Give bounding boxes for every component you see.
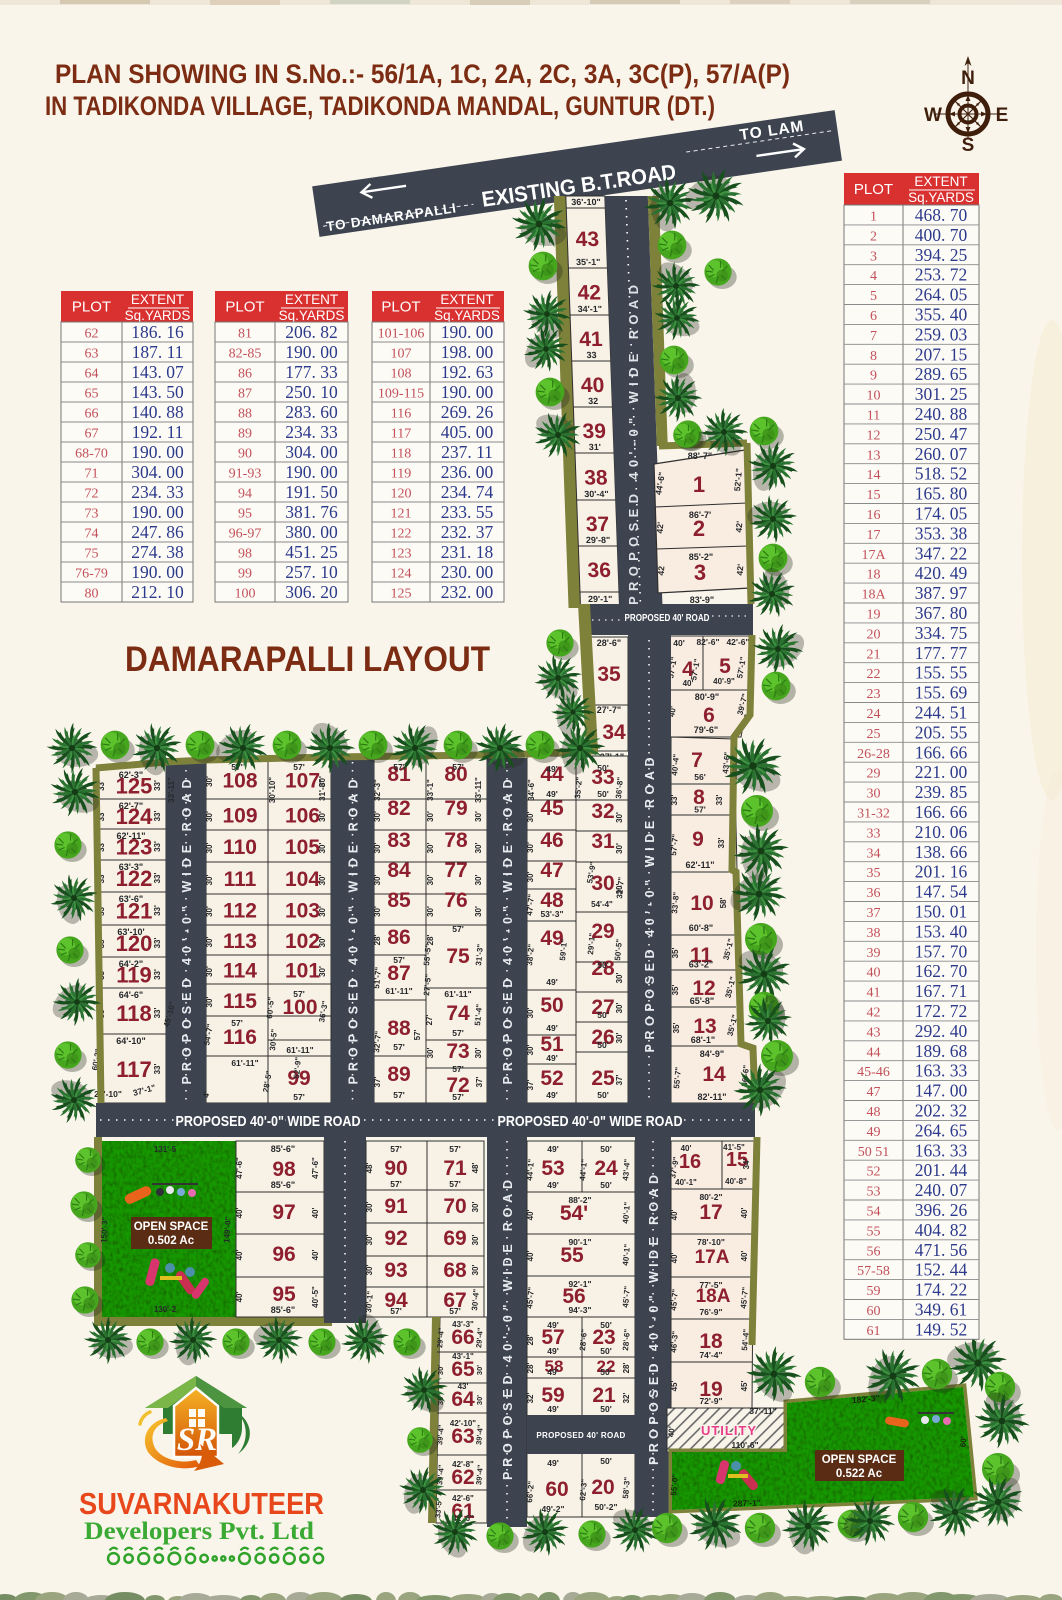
- svg-text:30': 30': [526, 1008, 535, 1019]
- svg-text:27'-5": 27'-5": [422, 973, 433, 996]
- svg-text:61'-11": 61'-11": [444, 989, 471, 999]
- svg-text:102: 102: [285, 930, 320, 953]
- svg-text:33': 33': [153, 1064, 162, 1075]
- svg-text:60'-8": 60'-8": [689, 923, 713, 933]
- svg-text:50'-5": 50'-5": [613, 938, 624, 961]
- svg-text:57': 57': [452, 924, 463, 934]
- svg-text:32: 32: [588, 396, 598, 406]
- svg-text:40': 40': [235, 1292, 244, 1303]
- svg-text:30': 30': [426, 811, 435, 822]
- svg-text:Sq.YARDS: Sq.YARDS: [908, 190, 974, 205]
- svg-text:30': 30': [318, 937, 327, 948]
- svg-text:37: 37: [585, 513, 609, 536]
- svg-text:103: 103: [285, 900, 320, 923]
- svg-text:57': 57': [413, 1030, 422, 1041]
- svg-text:96-97: 96-97: [229, 527, 262, 542]
- svg-text:49': 49': [547, 1320, 558, 1330]
- svg-text:30': 30': [373, 843, 382, 854]
- svg-text:90: 90: [238, 447, 252, 462]
- svg-text:36: 36: [587, 559, 611, 582]
- svg-text:30': 30': [318, 843, 327, 854]
- svg-text:50': 50': [600, 1144, 611, 1154]
- svg-text:1: 1: [870, 209, 877, 224]
- svg-text:87: 87: [238, 387, 252, 402]
- svg-text:79'-6": 79'-6": [694, 725, 718, 735]
- svg-text:57': 57': [452, 1064, 463, 1074]
- svg-text:152. 44: 152. 44: [915, 1260, 968, 1280]
- svg-text:25: 25: [591, 1067, 615, 1090]
- svg-text:30'-4": 30'-4": [470, 1288, 481, 1311]
- svg-text:36'-8": 36'-8": [614, 776, 625, 799]
- svg-text:190. 00: 190. 00: [131, 562, 184, 582]
- svg-text:35': 35': [671, 948, 680, 959]
- svg-text:104: 104: [285, 868, 320, 891]
- svg-text:24: 24: [867, 707, 881, 722]
- svg-text:40': 40': [311, 1208, 320, 1219]
- svg-text:111: 111: [224, 868, 257, 891]
- svg-text:DAMARAPALLI LAYOUT: DAMARAPALLI LAYOUT: [125, 640, 490, 679]
- svg-text:49': 49': [546, 789, 557, 799]
- svg-text:57': 57': [449, 1179, 460, 1189]
- svg-text:18: 18: [867, 568, 881, 583]
- svg-text:74: 74: [85, 527, 99, 542]
- svg-text:30'-5": 30'-5": [268, 1028, 279, 1051]
- svg-text:18A: 18A: [861, 588, 886, 603]
- svg-text:292. 40: 292. 40: [915, 1021, 968, 1041]
- svg-text:33: 33: [867, 826, 881, 841]
- svg-text:100: 100: [282, 996, 317, 1019]
- svg-text:65'-8": 65'-8": [690, 996, 714, 1006]
- svg-text:57': 57': [231, 1018, 242, 1028]
- svg-text:140. 88: 140. 88: [131, 402, 184, 422]
- svg-text:43: 43: [867, 1025, 881, 1040]
- svg-text:30': 30': [205, 811, 214, 822]
- svg-text:71: 71: [85, 467, 99, 482]
- svg-text:43'-4": 43'-4": [621, 1158, 632, 1181]
- svg-text:74'-4": 74'-4": [699, 1350, 722, 1360]
- svg-text:205. 55: 205. 55: [915, 722, 968, 742]
- svg-text:EXTENT: EXTENT: [914, 174, 967, 189]
- svg-text:55: 55: [867, 1224, 881, 1239]
- svg-text:57': 57': [393, 1042, 404, 1052]
- svg-text:301. 25: 301. 25: [915, 384, 968, 404]
- svg-text:EXTENT: EXTENT: [131, 292, 184, 307]
- svg-text:114: 114: [223, 960, 257, 983]
- svg-text:61'-11": 61'-11": [286, 1045, 313, 1055]
- svg-text:33'-11": 33'-11": [474, 777, 483, 803]
- svg-text:PROPOSED 40'-0" WIDE ROAD: PROPOSED 40'-0" WIDE ROAD: [647, 1175, 661, 1465]
- svg-text:60'-5": 60'-5": [265, 996, 276, 1019]
- svg-text:45': 45': [740, 1381, 749, 1392]
- svg-text:37': 37': [615, 1075, 624, 1086]
- svg-text:29'-4": 29'-4": [474, 1327, 485, 1348]
- svg-text:76'-9": 76'-9": [699, 1307, 722, 1317]
- svg-text:SR: SR: [177, 1422, 217, 1458]
- svg-text:53'-3": 53'-3": [540, 909, 563, 919]
- svg-text:105: 105: [285, 836, 320, 859]
- svg-text:355. 40: 355. 40: [915, 304, 968, 324]
- svg-text:122: 122: [116, 866, 153, 891]
- svg-text:30': 30': [474, 1048, 483, 1059]
- svg-text:49': 49': [546, 1053, 557, 1063]
- svg-text:19: 19: [867, 607, 881, 622]
- svg-text:48': 48': [471, 1163, 480, 1174]
- svg-text:157. 70: 157. 70: [915, 941, 968, 961]
- svg-text:57': 57': [390, 1306, 401, 1316]
- svg-text:57': 57': [293, 1092, 304, 1102]
- svg-text:44: 44: [867, 1045, 881, 1060]
- svg-text:17: 17: [867, 528, 881, 543]
- svg-text:30': 30': [474, 811, 483, 822]
- svg-text:45-46: 45-46: [857, 1065, 890, 1080]
- svg-text:31-32: 31-32: [857, 806, 890, 821]
- svg-text:347. 22: 347. 22: [915, 543, 968, 563]
- svg-text:394. 25: 394. 25: [915, 245, 968, 265]
- svg-text:47'-6": 47'-6": [235, 1157, 244, 1179]
- svg-text:17A: 17A: [861, 548, 886, 563]
- svg-text:143. 50: 143. 50: [131, 382, 184, 402]
- svg-text:52: 52: [867, 1165, 881, 1180]
- svg-text:42'-6": 42'-6": [452, 1494, 474, 1503]
- svg-text:237. 11: 237. 11: [441, 442, 493, 462]
- svg-text:40'-1": 40'-1": [621, 1201, 632, 1224]
- svg-text:55: 55: [560, 1244, 584, 1267]
- svg-text:29'-8": 29'-8": [586, 535, 611, 545]
- svg-text:20: 20: [867, 627, 881, 642]
- svg-text:198. 00: 198. 00: [441, 342, 494, 362]
- svg-text:1: 1: [693, 472, 705, 497]
- svg-text:30': 30': [526, 842, 535, 853]
- svg-text:54': 54': [560, 1202, 588, 1225]
- svg-text:6: 6: [703, 704, 715, 727]
- svg-text:50': 50': [600, 1367, 611, 1377]
- svg-text:77: 77: [444, 859, 467, 882]
- svg-text:88: 88: [387, 1017, 411, 1040]
- svg-text:88'-7": 88'-7": [688, 451, 712, 461]
- svg-text:190. 00: 190. 00: [441, 322, 494, 342]
- svg-text:87: 87: [387, 962, 410, 985]
- svg-text:75: 75: [446, 945, 470, 968]
- svg-text:82: 82: [387, 797, 410, 820]
- svg-text:29'-1": 29'-1": [586, 932, 597, 955]
- svg-text:124: 124: [116, 804, 153, 829]
- svg-text:SUVARNAKUTEER: SUVARNAKUTEER: [79, 1486, 324, 1521]
- svg-text:49': 49': [546, 977, 557, 987]
- svg-text:40': 40': [311, 1250, 320, 1261]
- svg-text:240. 88: 240. 88: [915, 404, 968, 424]
- svg-text:50': 50': [600, 1404, 611, 1414]
- svg-text:39: 39: [867, 946, 881, 961]
- svg-text:90: 90: [384, 1157, 407, 1180]
- svg-text:60: 60: [545, 1478, 568, 1501]
- svg-text:57': 57': [393, 762, 404, 772]
- svg-text:177. 77: 177. 77: [915, 643, 968, 663]
- svg-text:28': 28': [526, 1363, 535, 1374]
- svg-text:190. 00: 190. 00: [131, 502, 184, 522]
- svg-text:264. 65: 264. 65: [915, 1120, 968, 1140]
- svg-text:65: 65: [451, 1358, 475, 1381]
- svg-text:PLOT: PLOT: [72, 299, 111, 316]
- svg-text:48': 48': [365, 1163, 374, 1174]
- svg-text:207. 15: 207. 15: [915, 344, 968, 364]
- svg-text:206. 82: 206. 82: [285, 322, 338, 342]
- svg-text:349. 61: 349. 61: [915, 1299, 968, 1319]
- svg-text:40': 40': [740, 1251, 749, 1262]
- svg-text:10: 10: [867, 389, 881, 404]
- svg-text:28'-6": 28'-6": [597, 638, 621, 648]
- svg-text:70: 70: [443, 1195, 466, 1218]
- svg-text:45'-7": 45'-7": [739, 1286, 750, 1309]
- svg-text:57': 57': [694, 805, 705, 815]
- svg-text:33': 33': [153, 841, 162, 852]
- svg-text:30': 30': [318, 875, 327, 886]
- svg-text:13: 13: [867, 448, 881, 463]
- svg-text:117: 117: [116, 1057, 152, 1082]
- svg-text:33'-8": 33'-8": [670, 891, 681, 914]
- svg-text:234. 33: 234. 33: [131, 482, 184, 502]
- svg-text:42'-8": 42'-8": [452, 1460, 474, 1469]
- svg-text:PROPOSED 40'-0" WIDE ROAD: PROPOSED 40'-0" WIDE ROAD: [347, 780, 361, 1085]
- svg-text:97: 97: [272, 1201, 295, 1224]
- svg-text:49': 49': [546, 764, 557, 774]
- svg-text:54: 54: [867, 1204, 881, 1219]
- svg-text:40': 40': [683, 679, 694, 688]
- svg-text:334. 75: 334. 75: [915, 623, 968, 643]
- svg-text:28': 28': [426, 935, 435, 946]
- svg-text:42': 42': [734, 521, 745, 533]
- svg-text:30': 30': [205, 843, 214, 854]
- svg-text:93: 93: [384, 1259, 407, 1282]
- svg-text:30: 30: [867, 787, 881, 802]
- svg-text:64'-6": 64'-6": [119, 990, 143, 1000]
- svg-text:74: 74: [446, 1002, 470, 1025]
- svg-text:62: 62: [451, 1466, 474, 1489]
- svg-text:33': 33': [153, 780, 162, 791]
- svg-text:9: 9: [870, 369, 877, 384]
- svg-text:80'-9": 80'-9": [695, 692, 719, 702]
- svg-text:35: 35: [597, 663, 621, 686]
- svg-text:45'-7": 45'-7": [525, 1286, 536, 1309]
- svg-text:149'-0": 149'-0": [222, 1216, 232, 1243]
- svg-text:81: 81: [238, 327, 252, 342]
- svg-text:190. 00: 190. 00: [131, 442, 184, 462]
- svg-text:50': 50': [600, 1346, 611, 1356]
- svg-text:30': 30': [475, 1365, 484, 1375]
- svg-text:92: 92: [384, 1227, 407, 1250]
- svg-text:42: 42: [867, 1005, 881, 1020]
- svg-text:42: 42: [656, 565, 667, 576]
- svg-text:47'-7": 47'-7": [525, 893, 536, 916]
- svg-text:30': 30': [318, 811, 327, 822]
- svg-text:27'-7": 27'-7": [597, 705, 621, 715]
- svg-text:57': 57': [293, 989, 304, 999]
- svg-text:250. 47: 250. 47: [915, 424, 968, 444]
- svg-text:98: 98: [238, 547, 252, 562]
- svg-text:30': 30': [205, 906, 214, 917]
- svg-text:30'-10": 30'-10": [268, 777, 277, 803]
- svg-text:120: 120: [116, 931, 153, 956]
- svg-text:85: 85: [387, 889, 411, 912]
- svg-text:2: 2: [870, 229, 877, 244]
- svg-text:36'-10": 36'-10": [571, 197, 601, 207]
- svg-text:5: 5: [870, 289, 877, 304]
- svg-text:33': 33': [153, 938, 162, 949]
- svg-text:106: 106: [285, 805, 320, 828]
- svg-text:26-28: 26-28: [857, 747, 890, 762]
- svg-text:43'-3": 43'-3": [452, 1320, 474, 1329]
- svg-text:116: 116: [223, 1026, 257, 1049]
- svg-text:190. 00: 190. 00: [285, 462, 338, 482]
- svg-text:30': 30': [373, 906, 382, 917]
- svg-text:30': 30': [474, 875, 483, 886]
- svg-text:33': 33': [153, 905, 162, 916]
- svg-text:49': 49': [547, 1458, 558, 1468]
- svg-text:33'-11": 33'-11": [167, 777, 176, 803]
- svg-text:33': 33': [153, 1008, 162, 1019]
- svg-text:57': 57': [452, 762, 463, 772]
- svg-text:73: 73: [85, 507, 99, 522]
- svg-text:28': 28': [622, 1363, 631, 1374]
- svg-text:38: 38: [867, 926, 881, 941]
- svg-text:44'-1": 44'-1": [578, 1158, 589, 1181]
- svg-text:172. 72: 172. 72: [915, 1001, 968, 1021]
- svg-text:98: 98: [272, 1158, 296, 1181]
- svg-text:244. 51: 244. 51: [915, 702, 968, 722]
- svg-text:304. 00: 304. 00: [131, 462, 184, 482]
- svg-text:30': 30': [526, 1045, 535, 1056]
- svg-text:50': 50': [597, 763, 608, 773]
- svg-text:174. 05: 174. 05: [915, 503, 968, 523]
- svg-text:PROPOSED 40' ROAD: PROPOSED 40' ROAD: [536, 1431, 625, 1440]
- svg-text:125: 125: [391, 587, 412, 602]
- svg-text:232. 00: 232. 00: [441, 582, 494, 602]
- svg-text:55'-5": 55'-5": [422, 943, 433, 966]
- svg-text:108: 108: [222, 770, 257, 793]
- svg-text:68'-1": 68'-1": [691, 1035, 715, 1045]
- svg-text:34: 34: [867, 846, 881, 861]
- svg-text:86'-7': 86'-7': [689, 510, 711, 520]
- svg-text:155. 69: 155. 69: [915, 683, 968, 703]
- svg-text:60': 60': [959, 1436, 969, 1448]
- svg-text:40'-1": 40'-1": [675, 1178, 697, 1187]
- svg-text:57': 57': [449, 1144, 460, 1154]
- svg-text:31'-3": 31'-3": [474, 943, 485, 966]
- svg-text:191. 50: 191. 50: [285, 482, 338, 502]
- svg-text:30': 30': [426, 875, 435, 886]
- svg-text:236. 00: 236. 00: [441, 462, 494, 482]
- svg-text:30': 30': [471, 1202, 480, 1213]
- svg-text:4: 4: [870, 269, 877, 284]
- svg-text:82'-6": 82'-6": [696, 637, 719, 647]
- svg-text:37: 37: [867, 906, 881, 921]
- svg-text:PROPOSED 40'-0" WIDE ROAD: PROPOSED 40'-0" WIDE ROAD: [180, 780, 194, 1085]
- svg-text:212. 10: 212. 10: [131, 582, 184, 602]
- svg-text:27': 27': [425, 1015, 434, 1026]
- svg-text:289. 65: 289. 65: [915, 364, 968, 384]
- svg-text:35': 35': [672, 1023, 681, 1034]
- svg-text:113: 113: [223, 930, 257, 953]
- svg-text:PROPOSED 40' ROAD: PROPOSED 40' ROAD: [625, 613, 710, 624]
- svg-text:40': 40': [670, 1210, 679, 1221]
- svg-text:518. 52: 518. 52: [915, 464, 968, 484]
- svg-text:N: N: [961, 68, 975, 89]
- svg-text:51'-4": 51'-4": [473, 1003, 484, 1026]
- svg-text:23: 23: [867, 687, 881, 702]
- svg-text:40': 40': [670, 1253, 679, 1264]
- svg-text:30': 30': [365, 1202, 374, 1213]
- svg-text:50': 50': [600, 1180, 611, 1190]
- svg-text:41: 41: [867, 986, 881, 1001]
- svg-text:88'-2": 88'-2": [568, 1195, 591, 1205]
- svg-text:67: 67: [85, 427, 99, 442]
- svg-text:166. 66: 166. 66: [915, 802, 968, 822]
- svg-text:90'-1": 90'-1": [568, 1237, 591, 1247]
- svg-text:76-79: 76-79: [75, 567, 108, 582]
- svg-text:91: 91: [384, 1195, 408, 1218]
- svg-text:47: 47: [540, 859, 563, 882]
- svg-text:66: 66: [451, 1326, 474, 1349]
- svg-text:78'-10": 78'-10": [697, 1237, 725, 1247]
- svg-text:471. 56: 471. 56: [915, 1240, 968, 1260]
- svg-text:33': 33': [153, 811, 162, 822]
- svg-text:49': 49': [547, 1346, 558, 1356]
- svg-text:35'-1": 35'-1": [576, 257, 601, 267]
- svg-text:PLOT: PLOT: [854, 181, 893, 198]
- svg-text:50: 50: [540, 994, 563, 1017]
- svg-text:14: 14: [702, 1063, 726, 1086]
- svg-text:89: 89: [387, 1063, 410, 1086]
- svg-text:380. 00: 380. 00: [285, 522, 338, 542]
- svg-text:30': 30': [475, 1395, 484, 1405]
- svg-text:37': 37': [475, 1077, 484, 1088]
- svg-text:32': 32': [622, 1393, 631, 1404]
- svg-text:64'-10": 64'-10": [116, 1036, 145, 1046]
- svg-text:34: 34: [602, 721, 626, 744]
- svg-text:119: 119: [116, 963, 152, 988]
- svg-text:33': 33': [717, 838, 726, 849]
- svg-text:30': 30': [615, 812, 624, 823]
- svg-text:57': 57': [452, 1092, 463, 1102]
- svg-text:30': 30': [426, 906, 435, 917]
- svg-text:52'-1": 52'-1": [732, 468, 744, 492]
- svg-text:37': 37': [373, 1077, 382, 1088]
- svg-text:234. 74: 234. 74: [441, 482, 494, 502]
- svg-text:30': 30': [615, 1003, 624, 1014]
- svg-text:101-106: 101-106: [378, 327, 425, 342]
- svg-text:3: 3: [870, 249, 877, 264]
- svg-text:468. 70: 468. 70: [915, 205, 968, 225]
- svg-text:61: 61: [867, 1324, 881, 1339]
- svg-text:400. 70: 400. 70: [915, 225, 968, 245]
- svg-text:66'-2": 66'-2": [525, 1480, 536, 1503]
- svg-text:30': 30': [365, 1265, 374, 1276]
- svg-text:49': 49': [546, 1023, 557, 1033]
- svg-text:72: 72: [85, 487, 99, 502]
- svg-text:62'-11": 62'-11": [686, 860, 715, 870]
- svg-text:30': 30': [436, 1365, 445, 1375]
- svg-text:53: 53: [541, 1157, 564, 1180]
- svg-text:287'-1": 287'-1": [733, 1498, 761, 1509]
- svg-text:6: 6: [870, 309, 877, 324]
- svg-text:50': 50': [597, 960, 608, 970]
- svg-text:240. 07: 240. 07: [915, 1180, 968, 1200]
- svg-text:367. 80: 367. 80: [915, 603, 968, 623]
- svg-text:PROPOSED 40'-0" WIDE ROAD: PROPOSED 40'-0" WIDE ROAD: [626, 285, 641, 605]
- svg-text:232. 37: 232. 37: [441, 522, 494, 542]
- svg-text:40'-4": 40'-4": [670, 753, 681, 776]
- svg-text:92'-1": 92'-1": [568, 1279, 591, 1289]
- svg-text:166. 66: 166. 66: [915, 742, 968, 762]
